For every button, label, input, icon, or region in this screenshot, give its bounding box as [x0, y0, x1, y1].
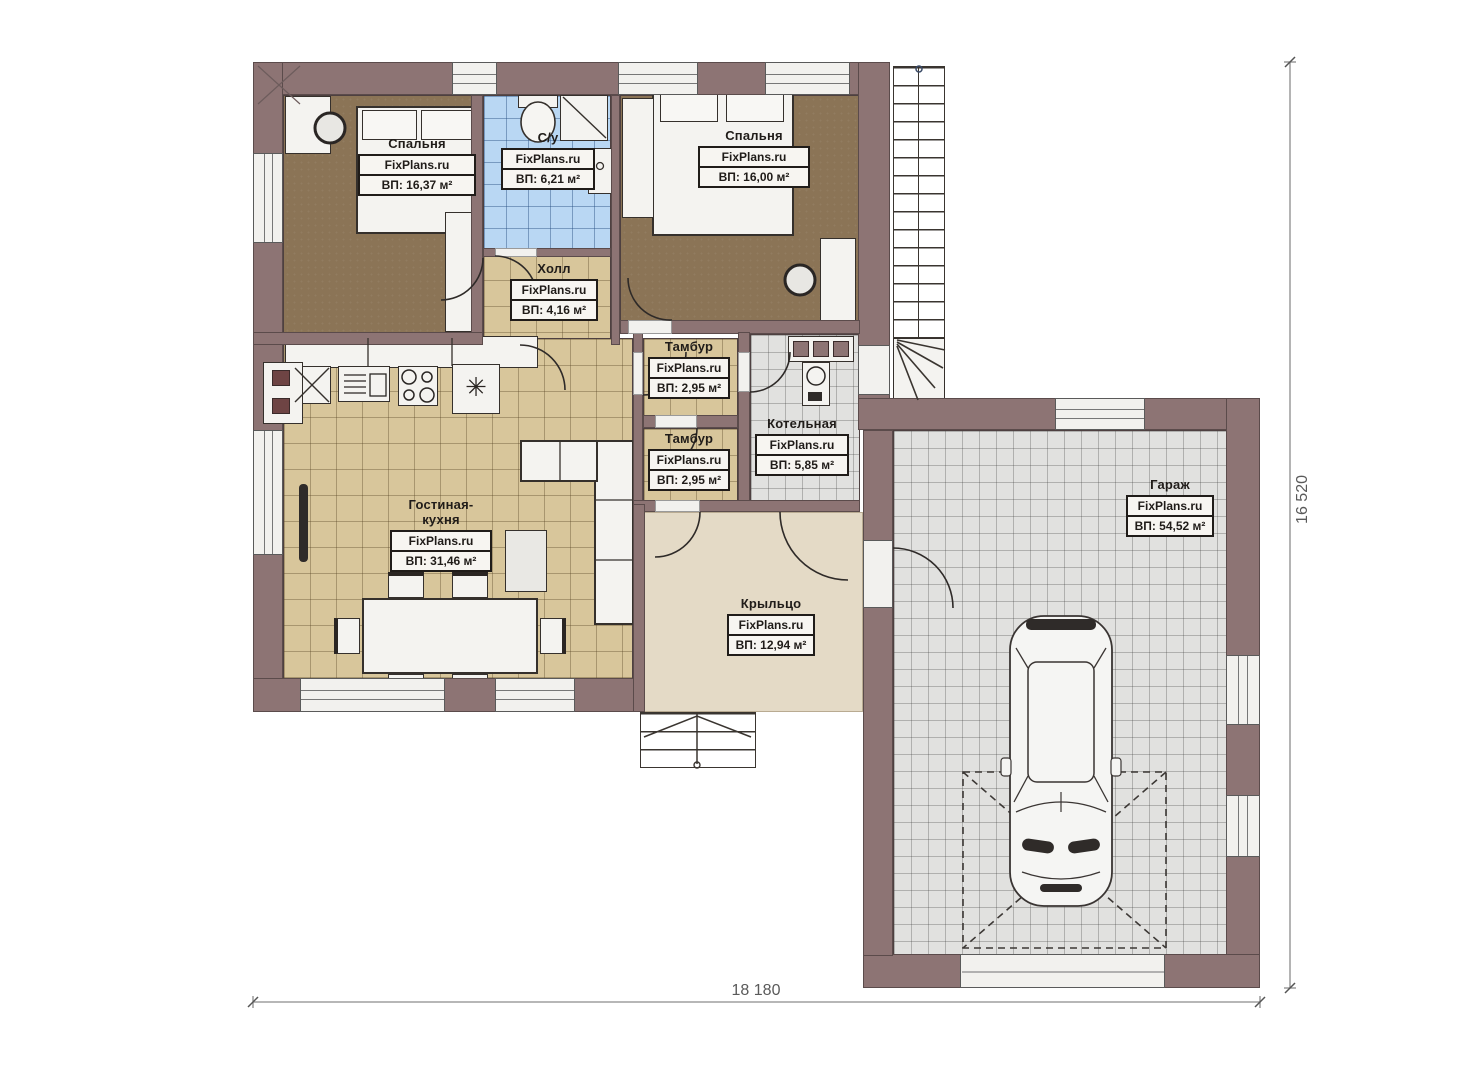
porch-entry-steps — [640, 712, 756, 768]
toilet-tank — [518, 95, 558, 108]
room-area: ВП: 16,37 м² — [360, 174, 474, 194]
room-area: ВП: 12,94 м² — [729, 634, 813, 654]
room-area: ВП: 2,95 м² — [650, 469, 728, 489]
window-left-bedroom1 — [253, 153, 283, 243]
room-name: С/у — [501, 130, 595, 145]
window-bottom-living-2 — [495, 678, 575, 712]
room-name: Котельная — [755, 416, 849, 431]
window-left-living — [253, 430, 283, 555]
chair — [388, 572, 424, 598]
watermark: FixPlans.ru — [650, 359, 728, 377]
staircase-winder — [893, 338, 945, 402]
wall-bathroom-bedroom2 — [611, 95, 620, 345]
door-gap-tambur2 — [655, 415, 697, 428]
room-area: ВП: 6,21 м² — [503, 168, 593, 188]
door-gap-boiler-exit — [858, 345, 890, 395]
room-area: ВП: 16,00 м² — [700, 166, 808, 186]
door-gap-bedroom2 — [628, 320, 672, 334]
desk-bedroom2 — [820, 238, 856, 324]
watermark: FixPlans.ru — [729, 616, 813, 634]
wall-bedroom1-bathroom — [471, 95, 483, 345]
watermark: FixPlans.ru — [1128, 497, 1212, 515]
window-garage-top — [1055, 398, 1145, 430]
chair — [452, 572, 488, 598]
dining-table — [362, 598, 538, 674]
room-label-bedroom-2: Спальня FixPlans.ru ВП: 16,00 м² — [698, 128, 810, 188]
room-label-living: Гостиная-кухня FixPlans.ru ВП: 31,46 м² — [390, 497, 492, 572]
appliance — [833, 341, 849, 357]
appliance — [813, 341, 829, 357]
watermark: FixPlans.ru — [360, 156, 474, 174]
door-gap-porch-garage — [863, 540, 893, 608]
chair — [540, 618, 566, 654]
window-top-bedroom2-b — [765, 62, 850, 95]
room-label-bedroom-1: Спальня FixPlans.ru ВП: 16,37 м² — [358, 136, 476, 196]
room-name: Гостиная-кухня — [390, 497, 492, 527]
room-name: Холл — [510, 261, 598, 276]
coffee-table — [505, 530, 547, 592]
chair — [334, 618, 360, 654]
wall-living-porch — [633, 504, 645, 712]
dimension-width: 18 180 — [700, 982, 812, 1000]
exterior-staircase — [893, 66, 945, 338]
watermark: FixPlans.ru — [757, 436, 847, 454]
room-label-garage: Гараж FixPlans.ru ВП: 54,52 м² — [1126, 477, 1214, 537]
dimension-height: 16 520 — [1294, 475, 1312, 524]
room-label-tambur-1: Тамбур FixPlans.ru ВП: 2,95 м² — [648, 339, 730, 399]
appliance — [793, 341, 809, 357]
window-bottom-living-1 — [300, 678, 445, 712]
room-name: Спальня — [698, 128, 810, 143]
wall-bedroom1-living — [253, 332, 483, 345]
kitchen-sink — [338, 366, 390, 402]
room-area: ВП: 5,85 м² — [757, 454, 847, 474]
room-label-tambur-2: Тамбур FixPlans.ru ВП: 2,95 м² — [648, 431, 730, 491]
room-label-boiler: Котельная FixPlans.ru ВП: 5,85 м² — [755, 416, 849, 476]
garage-door-opening — [960, 954, 1165, 988]
sofa-horizontal — [520, 440, 598, 482]
watermark: FixPlans.ru — [392, 532, 490, 550]
room-name: Гараж — [1126, 477, 1214, 492]
door-gap-porch — [655, 500, 700, 512]
room-name: Тамбур — [648, 339, 730, 354]
room-name: Спальня — [358, 136, 476, 151]
room-area: ВП: 4,16 м² — [512, 299, 596, 319]
room-label-hall: Холл FixPlans.ru ВП: 4,16 м² — [510, 261, 598, 321]
window-top-bedroom2 — [618, 62, 698, 95]
door-gap-boiler — [738, 352, 750, 392]
stove — [398, 366, 438, 406]
watermark: FixPlans.ru — [503, 150, 593, 168]
watermark: FixPlans.ru — [650, 451, 728, 469]
door-gap-tambur1 — [633, 352, 643, 395]
room-name: Тамбур — [648, 431, 730, 446]
room-area: ВП: 2,95 м² — [650, 377, 728, 397]
room-area: ВП: 31,46 м² — [392, 550, 490, 570]
vent-shaft — [272, 370, 290, 386]
watermark: FixPlans.ru — [512, 281, 596, 299]
room-area: ВП: 54,52 м² — [1128, 515, 1212, 535]
room-label-bathroom: С/у FixPlans.ru ВП: 6,21 м² — [501, 130, 595, 190]
sofa-vertical — [594, 440, 634, 625]
watermark: FixPlans.ru — [700, 148, 808, 166]
room-label-porch: Крыльцо FixPlans.ru ВП: 12,94 м² — [727, 596, 815, 656]
boiler-unit — [802, 362, 830, 406]
wardrobe-bedroom2 — [622, 98, 654, 218]
window-top-bathroom — [452, 62, 497, 95]
window-garage-right-1 — [1226, 655, 1260, 725]
door-gap-bathroom — [495, 248, 537, 257]
heater-symbol-icon: ✳ — [452, 372, 500, 403]
room-name: Крыльцо — [727, 596, 815, 611]
floor-plan: ✳ — [0, 0, 1473, 1080]
vent-shaft — [272, 398, 290, 414]
window-garage-right-2 — [1226, 795, 1260, 857]
desk-bedroom1 — [285, 96, 331, 154]
wall-garage-left — [863, 430, 893, 956]
